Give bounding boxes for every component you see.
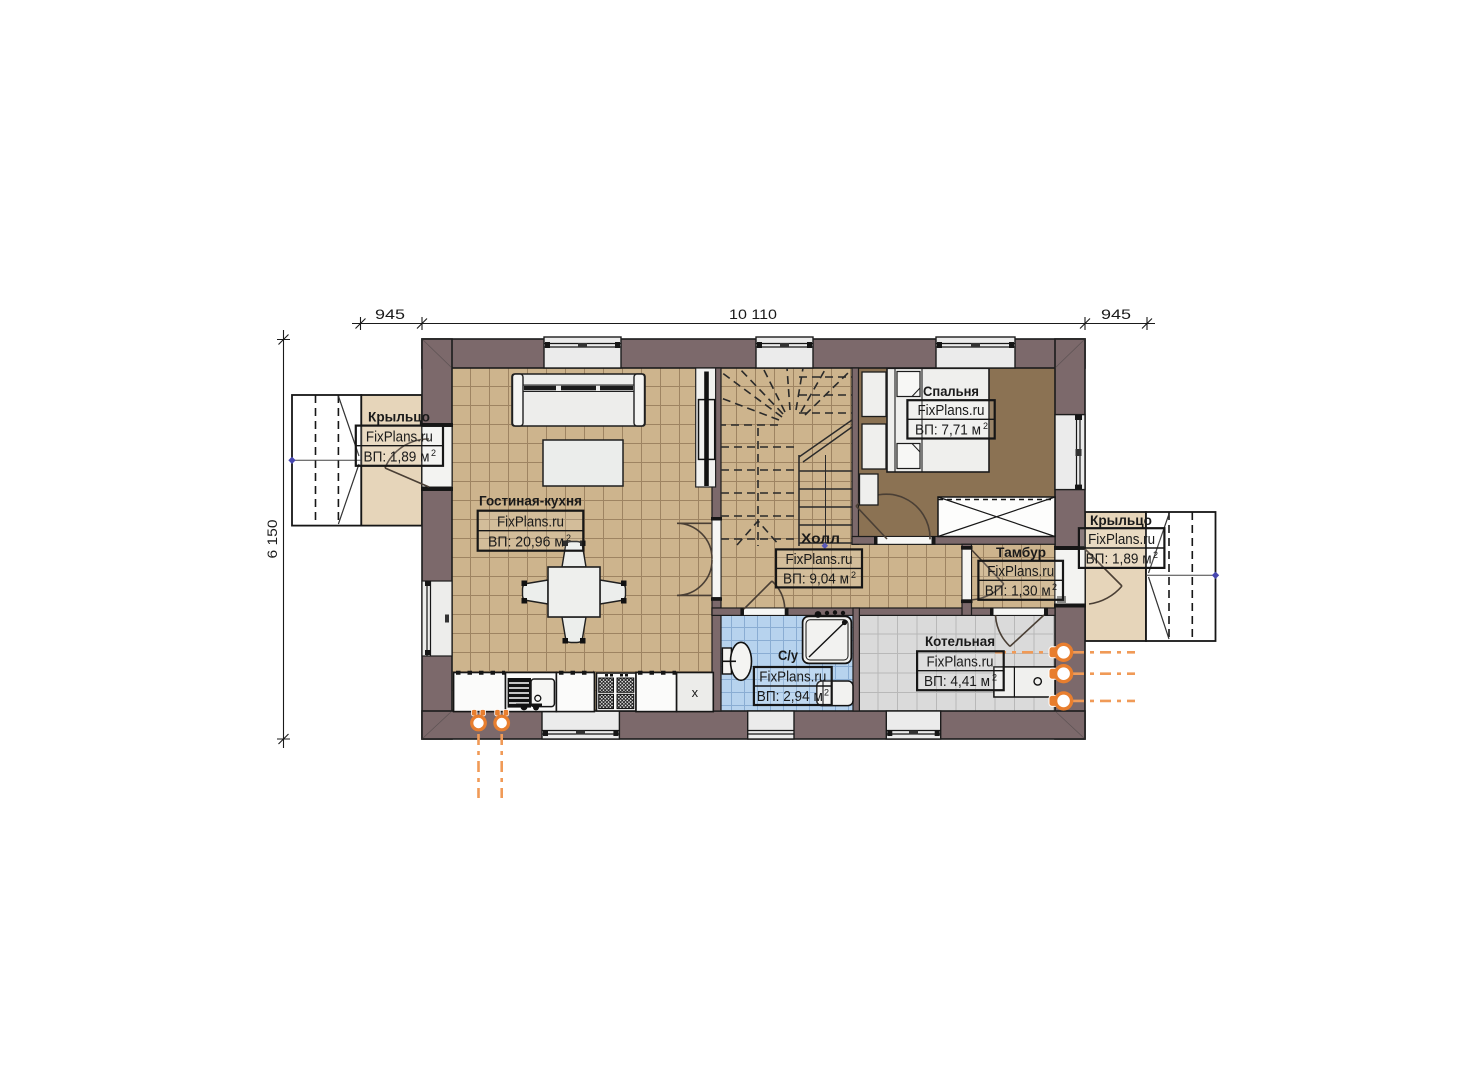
svg-text:FixPlans.ru: FixPlans.ru bbox=[918, 403, 985, 419]
svg-text:ВП: 20,96 м: ВП: 20,96 м bbox=[488, 535, 564, 551]
svg-text:945: 945 bbox=[375, 306, 405, 322]
svg-text:2: 2 bbox=[824, 688, 829, 698]
svg-text:2: 2 bbox=[992, 672, 997, 682]
svg-text:FixPlans.ru: FixPlans.ru bbox=[366, 430, 433, 446]
svg-text:FixPlans.ru: FixPlans.ru bbox=[987, 564, 1054, 580]
svg-text:x: x bbox=[692, 685, 699, 700]
svg-text:Крыльцо: Крыльцо bbox=[1090, 513, 1152, 528]
svg-text:ВП: 7,71 м: ВП: 7,71 м bbox=[915, 423, 981, 439]
svg-text:Тамбур: Тамбур bbox=[996, 545, 1046, 560]
svg-text:2: 2 bbox=[1153, 550, 1158, 560]
svg-text:2: 2 bbox=[1052, 582, 1057, 592]
svg-text:FixPlans.ru: FixPlans.ru bbox=[927, 654, 994, 670]
svg-text:Гостиная-кухня: Гостиная-кухня bbox=[479, 494, 582, 509]
svg-text:2: 2 bbox=[566, 533, 571, 543]
svg-text:FixPlans.ru: FixPlans.ru bbox=[786, 552, 853, 568]
svg-text:С/у: С/у bbox=[778, 648, 798, 663]
svg-text:Крыльцо: Крыльцо bbox=[368, 410, 430, 425]
svg-text:FixPlans.ru: FixPlans.ru bbox=[1088, 532, 1155, 548]
svg-text:Холл: Холл bbox=[801, 531, 840, 546]
svg-text:ВП: 4,41 м: ВП: 4,41 м bbox=[924, 674, 990, 690]
svg-text:10 110: 10 110 bbox=[729, 306, 777, 322]
svg-text:Котельная: Котельная bbox=[925, 634, 995, 649]
svg-text:FixPlans.ru: FixPlans.ru bbox=[497, 515, 564, 531]
svg-text:Спальня: Спальня bbox=[923, 384, 979, 399]
svg-text:ВП: 1,30 м: ВП: 1,30 м bbox=[985, 584, 1051, 600]
svg-text:2: 2 bbox=[851, 570, 856, 580]
svg-text:6 150: 6 150 bbox=[264, 519, 280, 558]
svg-text:FixPlans.ru: FixPlans.ru bbox=[759, 670, 826, 686]
svg-text:2: 2 bbox=[431, 448, 436, 458]
svg-text:945: 945 bbox=[1101, 306, 1131, 322]
svg-text:ВП: 9,04 м: ВП: 9,04 м bbox=[783, 572, 849, 588]
svg-text:ВП: 1,89 м: ВП: 1,89 м bbox=[364, 450, 430, 466]
svg-text:ВП: 2,94 м: ВП: 2,94 м bbox=[757, 689, 823, 705]
svg-text:ВП: 1,89 м: ВП: 1,89 м bbox=[1086, 551, 1152, 567]
svg-text:2: 2 bbox=[983, 421, 988, 431]
